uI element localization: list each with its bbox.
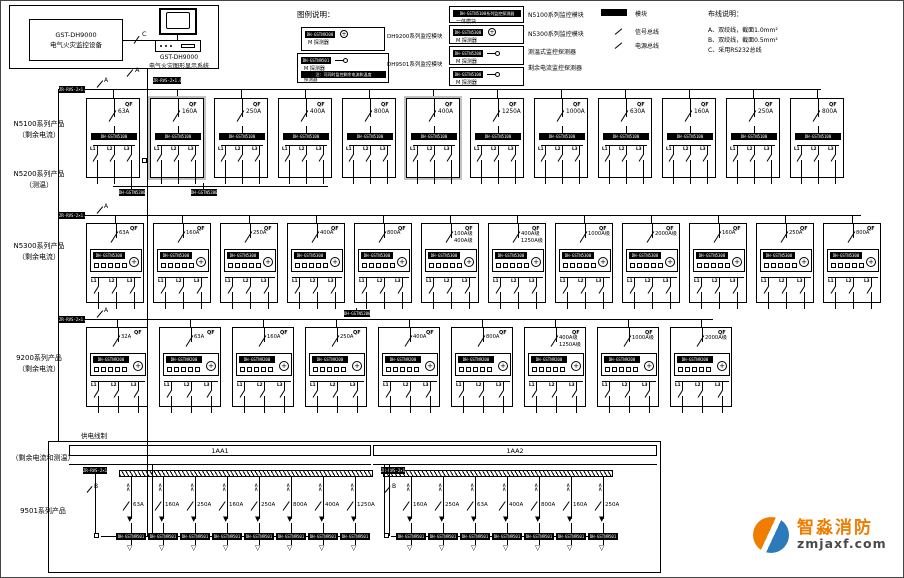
wire-v: [353, 160, 354, 184]
ct-sensor-icon: ∧ ∧: [158, 484, 162, 492]
wire-v: [165, 292, 166, 309]
feeder-wire: [603, 523, 604, 533]
ct-sensor-icon: ∧ ∧: [470, 484, 474, 492]
wire-v: [178, 160, 179, 184]
phase-label: L3: [636, 146, 642, 151]
module-tag: DH-GSTN5100: [667, 133, 713, 140]
breaker-tag: QF: [189, 102, 197, 108]
arrow-down-icon: ▼: [351, 515, 356, 523]
feeder-module-tag: DH-GSTN9501: [396, 533, 426, 540]
terminal-square: [510, 263, 515, 268]
terminal-square: [108, 263, 113, 268]
wire-v: [264, 396, 265, 413]
breaker-slash: [813, 110, 821, 122]
phase-label: L2: [747, 146, 753, 151]
wire-v: [576, 396, 577, 413]
breaker-tag: QF: [134, 330, 142, 336]
wire-v: [410, 396, 411, 413]
device-box: 250AQFDH-GSTN5300+L1L2L3: [756, 223, 814, 303]
wire-v: [384, 292, 385, 309]
terminal-square: [393, 367, 398, 372]
breaker-tag: QF: [532, 226, 540, 232]
terminal-square: [546, 367, 551, 372]
feeder-rating-label: 160A: [165, 502, 179, 508]
legend-item-box: DH-GSTN9200+M 探测器: [301, 27, 385, 51]
module-tag: DH-GSTN5100: [475, 133, 521, 140]
device-box: 160AQFDH-GSTN5100L1L2L3: [150, 98, 204, 178]
legend-caption: 测温式监控探测器: [528, 47, 576, 56]
wire-v: [609, 160, 610, 184]
phase-label: L2: [712, 278, 718, 283]
wire-v: [250, 292, 251, 309]
detector-circle-icon: +: [352, 361, 362, 371]
breaker-tag: QF: [718, 330, 726, 336]
box-stub: [753, 89, 754, 98]
phase-label: L1: [426, 278, 432, 283]
wire-v: [114, 99, 115, 117]
terminal-square: [400, 367, 405, 372]
terminal-square: [108, 367, 113, 372]
breaker-tag: QF: [130, 226, 138, 232]
terminal-square: [161, 263, 166, 268]
wire-v: [737, 292, 738, 309]
wire-v: [134, 292, 135, 309]
device-box: 160AQFDH-GSTN9200+L1L2L3: [232, 327, 294, 407]
wiring-note: A、双绞线，截面1.0mm²: [708, 25, 778, 34]
monitor-module: DH-GSTN5300+: [827, 249, 879, 272]
ct-sensor-icon: ∧ ∧: [286, 484, 290, 492]
legend-tag: DH-GSTN5100: [453, 71, 483, 78]
terminal-square: [181, 367, 186, 372]
feeder-wire: [131, 523, 132, 533]
terminal-square: [560, 367, 565, 372]
arrow-down-hollow-icon: ▽: [127, 544, 132, 552]
module-tag: DH-GSTN9200: [312, 356, 348, 363]
module-tag: DH-GSTN5300: [763, 252, 795, 259]
legend-caption: 电源总线: [635, 41, 659, 50]
detector-circle-icon: +: [717, 361, 727, 371]
wire-v: [835, 160, 836, 184]
device-box: 800AQFDH-GSTN5100L1L2L3: [342, 98, 396, 178]
arrow-down-hollow-icon: ▽: [255, 544, 260, 552]
detector-circle-icon: +: [598, 257, 608, 267]
phase-label: L2: [491, 146, 497, 151]
wire-v: [707, 160, 708, 184]
terminal-square: [341, 367, 346, 372]
box-stub: [628, 319, 629, 327]
monitor-module: DH-GSTN5300+: [157, 249, 209, 272]
arrow-down-icon: ▼: [407, 515, 412, 523]
box-stub: [305, 89, 306, 98]
brand-name: 智淼消防: [797, 513, 873, 538]
terminal-square: [457, 263, 462, 268]
phase-label: L2: [171, 146, 177, 151]
branch-a-label: A: [104, 77, 108, 84]
legend-label: M 探测器: [456, 58, 477, 65]
wiring-note: B、双绞线，截面0.5mm²: [708, 35, 778, 44]
phase-label: L3: [252, 146, 258, 151]
feeder-module-tag: DH-GSTN9501: [244, 533, 274, 540]
terminal-square: [175, 263, 180, 268]
wire-v: [433, 292, 434, 309]
breaker-tag: QF: [207, 330, 215, 336]
busbar: [383, 470, 613, 477]
terminal-square: [247, 367, 252, 372]
series-label-line: （剩余电流）: [3, 252, 75, 263]
phase-label: L1: [292, 278, 298, 283]
box-stub: [555, 319, 556, 327]
phase-label: L1: [164, 382, 170, 387]
box-stub: [433, 89, 434, 98]
arrow-down-icon: ▼: [439, 515, 444, 523]
wire-v: [670, 292, 671, 309]
module-tag: DH-GSTN5100: [539, 133, 585, 140]
phase-label: L3: [127, 278, 133, 283]
breaker-tag: QF: [465, 226, 473, 232]
box-stub: [450, 215, 451, 223]
arrow-down-icon: ▼: [287, 515, 292, 523]
device-box: 400AQFDH-GSTN5100L1L2L3: [278, 98, 332, 178]
series-label: 9501系列产品: [3, 506, 83, 517]
phase-label: L2: [511, 278, 517, 283]
busbar: [119, 470, 373, 477]
branch-slash: [97, 310, 104, 318]
wire-v: [690, 160, 691, 184]
phase-label: L3: [462, 278, 468, 283]
device-box: 250AQFDH-GSTN5100L1L2L3: [214, 98, 268, 178]
terminal-square: [254, 367, 259, 372]
terminal-square: [517, 263, 522, 268]
terminal-square: [539, 367, 544, 372]
series-label: N5200系列产品（测温）: [3, 169, 75, 191]
phase-label: L3: [730, 278, 736, 283]
breaker-tag: QF: [867, 226, 875, 232]
feeder-wire: [507, 477, 508, 519]
feeder-module-tag: DH-GSTN9501: [428, 533, 458, 540]
phase-label: L1: [158, 278, 164, 283]
detector-circle-icon: +: [397, 257, 407, 267]
device-box: 160AQFDH-GSTN5300+L1L2L3: [689, 223, 747, 303]
feeder-module-tag: DH-GSTN9501: [340, 533, 370, 540]
wire-v: [556, 396, 557, 413]
phase-label: L1: [310, 382, 316, 387]
terminal-square: [302, 263, 307, 268]
arrow-down-hollow-icon: ▽: [191, 544, 196, 552]
terminal-square: [256, 263, 261, 268]
wire-v: [503, 396, 504, 413]
feeder-module-tag: DH-GSTN9501: [308, 533, 338, 540]
feeder-wire: [571, 523, 572, 533]
ct-sensor-icon: ∧ ∧: [598, 484, 602, 492]
breaker-slash: [109, 110, 117, 122]
phase-label: L1: [154, 146, 160, 151]
feeder-wire: [443, 523, 444, 533]
wire-v: [567, 292, 568, 309]
ct-sensor-icon: ∧ ∧: [534, 484, 538, 492]
terminal-square: [711, 263, 716, 268]
feeder-rating-label: 250A: [261, 502, 275, 508]
phase-label: L2: [257, 382, 263, 387]
module-tag: DH-GSTN5100: [283, 133, 329, 140]
arrow-down-icon: ▼: [471, 515, 476, 523]
breaker-slash: [111, 231, 119, 243]
breaker-tag: QF: [331, 226, 339, 232]
feeder-wire: [195, 477, 196, 519]
terminal-square: [443, 263, 448, 268]
wire-v: [629, 396, 630, 413]
rating-label: 1000A: [566, 109, 585, 115]
wire-v: [536, 396, 537, 413]
phase-label: L1: [602, 382, 608, 387]
box-stub: [241, 89, 242, 98]
arrow-down-icon: ▼: [599, 515, 604, 523]
monitor-module: DH-GSTN5300+: [626, 249, 678, 272]
wire-v: [232, 292, 233, 309]
phase-label: L1: [474, 146, 480, 151]
terminal-square: [644, 263, 649, 268]
phase-label: L3: [715, 382, 721, 387]
device-box: 160AQFDH-GSTN5300+L1L2L3: [153, 223, 211, 303]
module-tag: DH-GSTN9200: [239, 356, 275, 363]
wire-v: [299, 292, 300, 309]
device-box: 1250AQFDH-GSTN5100L1L2L3: [470, 98, 524, 178]
terminal-square: [320, 367, 325, 372]
phase-label: L2: [779, 278, 785, 283]
terminal-square: [168, 263, 173, 268]
ct-sensor-icon: ∧ ∧: [350, 484, 354, 492]
phase-label: L2: [444, 278, 450, 283]
wire-v: [609, 396, 610, 413]
breaker-slash: [621, 110, 629, 122]
device-box: 400AQFDH-GSTN5100L1L2L3: [406, 98, 460, 178]
wire-v: [498, 99, 499, 117]
section-label: 供电线制: [81, 430, 107, 440]
breaker-slash: [173, 110, 181, 122]
wire-v: [719, 292, 720, 309]
phase-label: L2: [235, 146, 241, 151]
phase-label: L1: [493, 278, 499, 283]
wire-v: [402, 292, 403, 309]
breaker-tag: QF: [666, 226, 674, 232]
module-tag: DH-GSTN5300: [227, 252, 259, 259]
breaker-slash: [186, 335, 194, 347]
brand-url: zmjaxf.com: [797, 536, 887, 551]
wire-v: [337, 396, 338, 413]
box-stub: [718, 215, 719, 223]
series-label-line: 9501系列产品: [3, 506, 83, 517]
breaker-tag: QF: [353, 330, 361, 336]
phase-label: L3: [642, 382, 648, 387]
phase-label: L2: [111, 382, 117, 387]
module-tag: DH-GSTN5100: [91, 133, 137, 140]
arrow-down-hollow-icon: ▽: [439, 544, 444, 552]
monitor-module: DH-GSTN9200+: [382, 353, 438, 376]
rating-label: 630A: [630, 109, 645, 115]
branch-a-label: A: [104, 307, 108, 314]
wire-v: [500, 292, 501, 309]
arrow-down-hollow-icon: ▽: [567, 544, 572, 552]
feeder-wire: [475, 477, 476, 519]
display-name: 电气火灾图形显示系统: [135, 61, 223, 70]
feeder-module-tag: DH-GSTN9501: [460, 533, 490, 540]
box-stub: [117, 319, 118, 327]
box-stub: [113, 89, 114, 98]
module-tag: DH-GSTN9200: [385, 356, 421, 363]
terminal-square: [626, 367, 631, 372]
breaker-slash: [379, 231, 387, 243]
wire-v: [585, 292, 586, 309]
phase-label: L2: [619, 146, 625, 151]
wire-v: [768, 292, 769, 309]
wire-v: [259, 160, 260, 184]
panel-title-bar: 1AA2: [373, 445, 657, 456]
legend-item-box: DH-GSTN9501M 探测器注：可同时监控剩余电流和温度探测器: [297, 53, 389, 83]
breaker-tag: QF: [125, 102, 133, 108]
phase-label: L1: [761, 278, 767, 283]
monitor-module: DH-GSTN5300+: [559, 249, 611, 272]
breaker-slash: [624, 335, 632, 347]
terminal-square: [327, 367, 332, 372]
arrow-down-icon: ▼: [503, 515, 508, 523]
base-dot-icon: [160, 45, 162, 47]
wire-v: [268, 292, 269, 309]
series-label-line: N5300系列产品: [3, 241, 75, 252]
terminal-square: [619, 367, 624, 372]
phase-label: L1: [225, 278, 231, 283]
terminal-square: [313, 367, 318, 372]
breaker-slash: [332, 335, 340, 347]
legend-tag: DH-GSTN9501: [301, 57, 331, 64]
phase-label: L2: [427, 146, 433, 151]
feeder-module-tag: DH-GSTN9501: [148, 533, 178, 540]
phase-label: L3: [380, 146, 386, 151]
left-riser: [58, 89, 59, 441]
module-tag: DH-GSTN5300: [495, 252, 527, 259]
box-stub: [852, 215, 853, 223]
computer-screen-icon: [166, 12, 190, 29]
wire-v: [451, 160, 452, 184]
module-tag: DH-GSTN9200: [166, 356, 202, 363]
feeder-wire: [443, 477, 444, 519]
wire-v: [603, 292, 604, 309]
breaker-tag: QF: [499, 330, 507, 336]
breaker-slash: [697, 335, 705, 347]
terminal-square: [101, 263, 106, 268]
monitor-module: DH-GSTN9200+: [90, 353, 146, 376]
arrow-down-hollow-icon: ▽: [599, 544, 604, 552]
phase-label: L3: [423, 382, 429, 387]
legend-caption: 模块: [635, 9, 647, 18]
terminal-square: [605, 367, 610, 372]
wire-v: [652, 292, 653, 309]
series-label-line: N5100系列产品: [3, 119, 75, 130]
feeder-wire: [571, 477, 572, 519]
arrow-down-icon: ▼: [567, 515, 572, 523]
terminal-square: [390, 263, 395, 268]
signal-bus: [58, 215, 861, 216]
wire-v: [634, 292, 635, 309]
terminal-square: [591, 263, 596, 268]
wire-v: [387, 160, 388, 184]
box-stub: [482, 319, 483, 327]
panel-bus: [69, 464, 371, 465]
feeder-wire: [539, 477, 540, 519]
terminal-square: [725, 263, 730, 268]
feeder-rating-label: 400A: [325, 502, 339, 508]
phase-label: L2: [330, 382, 336, 387]
wire-v: [434, 126, 435, 133]
branch-a-label: A: [135, 66, 139, 74]
wire-v: [562, 160, 563, 184]
legend-tag: DH-GSTN5100系列监控探测器: [453, 10, 521, 17]
series-label: （剩余电流和测温）: [1, 453, 85, 464]
wire-v: [225, 160, 226, 184]
terminal-square: [764, 263, 769, 268]
legend-label: M 探测器: [308, 39, 329, 46]
monitor-module: DH-GSTN5300+: [90, 249, 142, 272]
phase-label: L3: [572, 146, 578, 151]
wire-v: [289, 160, 290, 184]
rating-label: 63A: [119, 230, 129, 236]
box-stub: [249, 215, 250, 223]
wire-v: [649, 396, 650, 413]
arrow-down-icon: ▼: [191, 515, 196, 523]
terminal-square: [685, 367, 690, 372]
wire-v: [434, 99, 435, 117]
wire-v: [498, 126, 499, 133]
feeder-wire: [475, 523, 476, 533]
controller-box: GST-DH9000 电气火灾监控设备: [29, 19, 123, 61]
terminal-square: [407, 367, 412, 372]
terminal-square: [101, 367, 106, 372]
terminal-square: [831, 263, 836, 268]
breaker-tag: QF: [829, 102, 837, 108]
feeder-rating-label: 400A: [509, 502, 523, 508]
wire-v: [357, 396, 358, 413]
terminal-square: [480, 367, 485, 372]
wire-v: [498, 160, 499, 184]
breaker-tag: QF: [280, 330, 288, 336]
terminal-square: [295, 263, 300, 268]
device-box: 32AQFDH-GSTN9200+L1L2L3: [86, 327, 148, 407]
rating-label: 250A: [246, 109, 261, 115]
terminal-square: [376, 263, 381, 268]
breaker-tag: QF: [253, 102, 261, 108]
arrow-down-hollow-icon: ▽: [223, 544, 228, 552]
breaker-tag: QF: [509, 102, 517, 108]
phase-label: L2: [476, 382, 482, 387]
legend-caption: 信号总线: [635, 27, 659, 36]
wiring-title: 布线说明：: [708, 9, 743, 19]
terminal-square: [792, 263, 797, 268]
temp-wire: [113, 186, 328, 187]
bus-cable-tag: ZR-RVS-2×1.0: [59, 212, 85, 219]
wire-v: [370, 160, 371, 184]
breaker-slash: [557, 110, 565, 122]
ct-sensor-icon: ∧ ∧: [406, 484, 410, 492]
rating-label: 800A: [374, 109, 389, 115]
terminal-square: [383, 263, 388, 268]
phase-label: L1: [675, 382, 681, 387]
feeder-module-tag: DH-GSTN9501: [212, 533, 242, 540]
rating-label: 1250A级: [521, 237, 543, 244]
breaker-tag: QF: [645, 330, 653, 336]
wire-v: [853, 292, 854, 309]
terminal-square: [436, 263, 441, 268]
terminal-square: [553, 367, 558, 372]
box-stub: [785, 215, 786, 223]
terminal-square: [188, 367, 193, 372]
